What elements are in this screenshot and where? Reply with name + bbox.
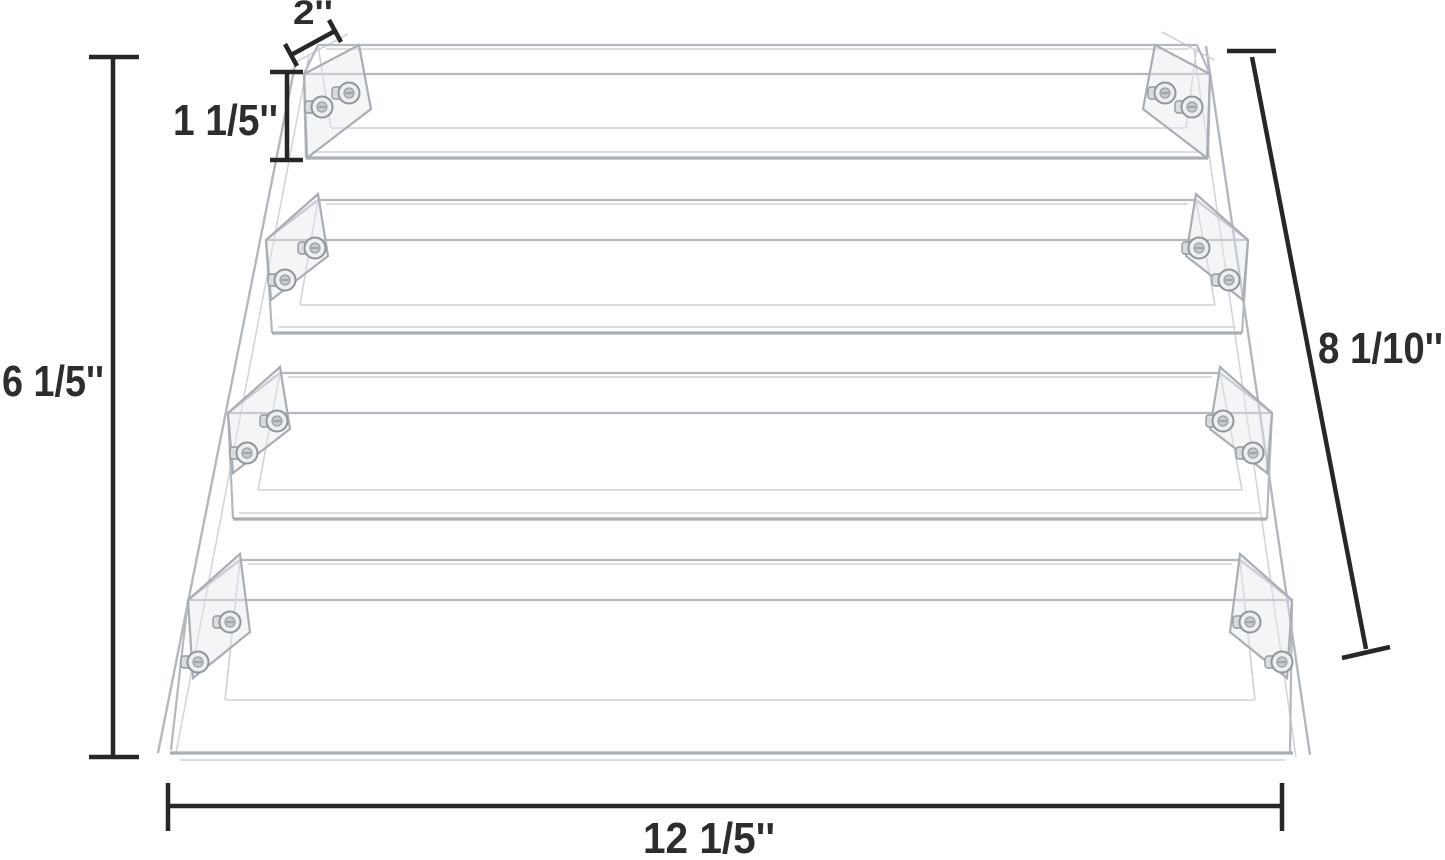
tier-3-interior-edges — [239, 373, 1261, 513]
tier-1-interior-edges — [312, 45, 1202, 152]
tier-4-main-edges — [171, 560, 1292, 753]
diagram-stage: 6 1/5'' 1 1/5'' 2'' 8 1/10'' 12 1/5'' — [0, 0, 1445, 860]
dimension-slant-side: 8 1/10'' — [1227, 51, 1443, 658]
product-dimension-diagram: 6 1/5'' 1 1/5'' 2'' 8 1/10'' 12 1/5'' — [0, 0, 1445, 860]
tier-3-main-edges — [228, 373, 1272, 519]
dimension-line — [291, 31, 335, 55]
screw — [181, 652, 209, 673]
dimension-tier-height: 1 1/5'' — [173, 72, 303, 160]
tier-4 — [170, 554, 1293, 760]
acrylic-riser — [158, 32, 1310, 760]
dimension-label-tier-height: 1 1/5'' — [173, 96, 278, 145]
tier-2 — [266, 194, 1248, 333]
tier-4-interior-edges — [180, 560, 1285, 760]
dimension-label-top-depth: 2'' — [293, 0, 333, 32]
dimension-total-height: 6 1/5'' — [2, 57, 139, 757]
dimension-total-width: 12 1/5'' — [168, 783, 1282, 860]
dimension-label-total-width: 12 1/5'' — [643, 814, 775, 860]
dimension-label-total-height: 6 1/5'' — [2, 357, 104, 406]
tier-2-main-edges — [266, 200, 1248, 333]
tier-2-interior-edges — [278, 200, 1236, 327]
dimension-label-slant-side: 8 1/10'' — [1318, 324, 1443, 373]
tier-1-main-edges — [304, 45, 1210, 158]
tier-3 — [228, 367, 1272, 519]
tier-1 — [304, 45, 1210, 158]
